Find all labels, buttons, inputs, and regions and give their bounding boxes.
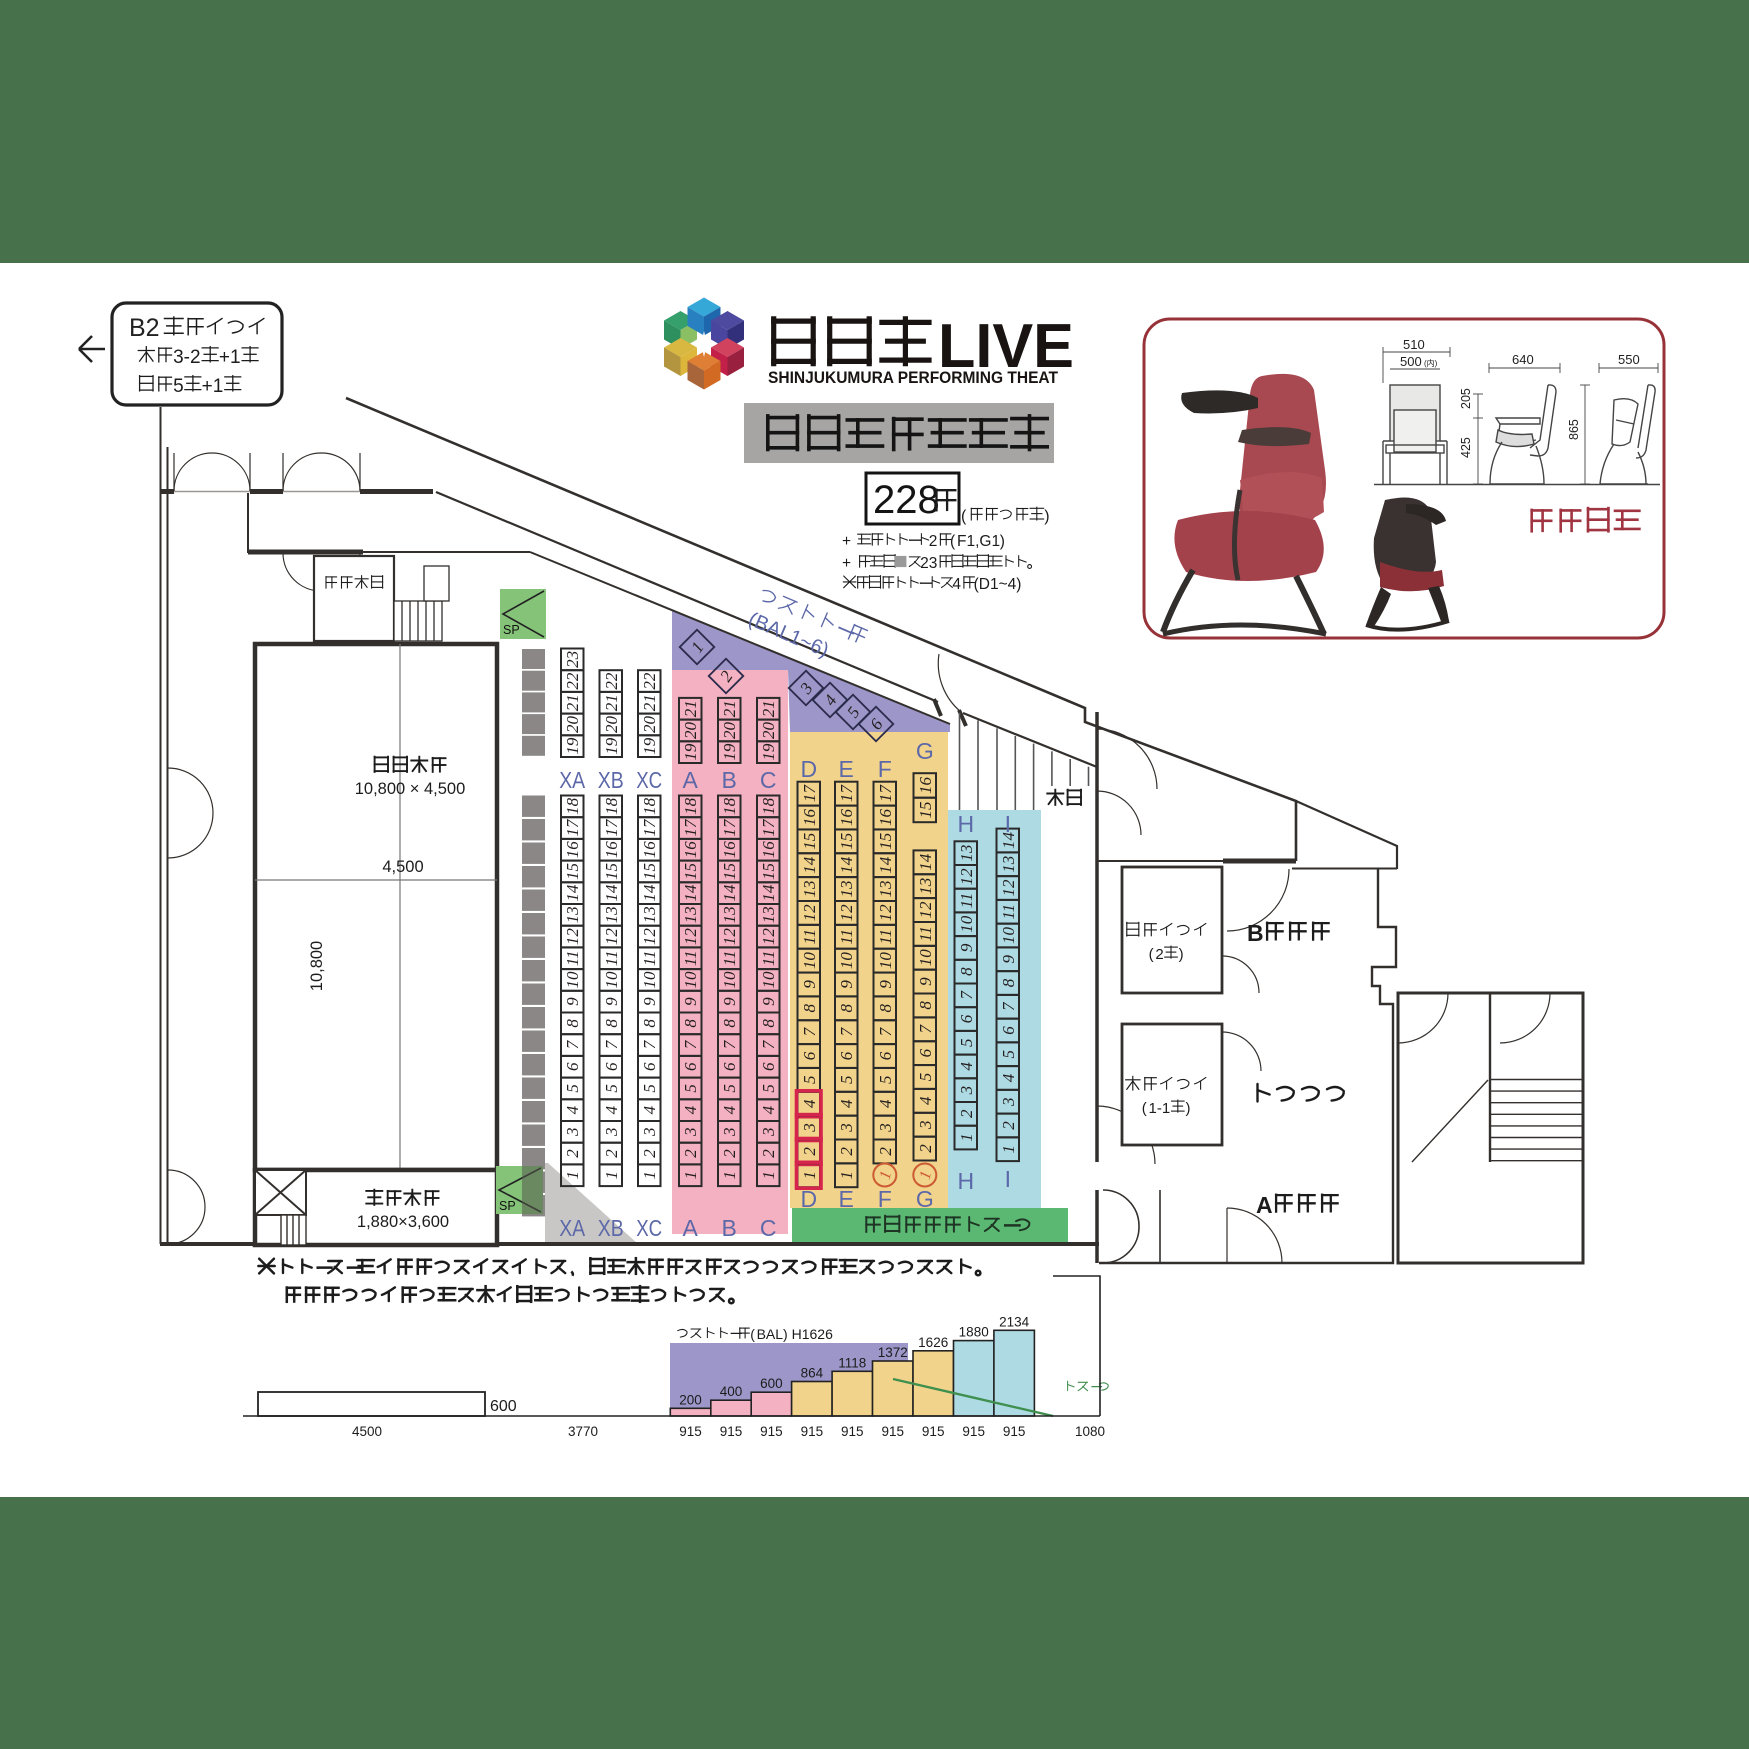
svg-text:ー: ー [907, 533, 923, 550]
svg-text:12: 12 [916, 901, 935, 919]
svg-text:12: 12 [957, 868, 976, 886]
svg-text:1626: 1626 [918, 1335, 948, 1350]
svg-text:3: 3 [957, 1086, 976, 1096]
svg-text:): ) [1044, 508, 1049, 525]
svg-text:20: 20 [759, 722, 778, 740]
svg-text:5: 5 [759, 1084, 778, 1093]
svg-text:425: 425 [1459, 437, 1473, 458]
svg-text:5: 5 [173, 376, 184, 397]
svg-text:11: 11 [916, 926, 935, 942]
svg-text:19: 19 [602, 737, 621, 755]
svg-text:865: 865 [1567, 419, 1581, 440]
svg-text:17: 17 [800, 784, 819, 803]
svg-text:21: 21 [681, 700, 700, 717]
svg-text:(: ( [1142, 1100, 1147, 1117]
svg-text:6: 6 [957, 1014, 976, 1023]
svg-text:11: 11 [681, 950, 700, 966]
svg-text:14: 14 [563, 884, 582, 902]
svg-text:+: + [842, 555, 851, 572]
svg-text:6: 6 [563, 1062, 582, 1071]
svg-text:3-2: 3-2 [173, 347, 200, 368]
svg-text:16: 16 [837, 809, 856, 827]
svg-text:17: 17 [759, 818, 778, 837]
svg-text:400: 400 [720, 1384, 743, 1399]
svg-text:(: ( [750, 1326, 755, 1342]
svg-text:9: 9 [563, 997, 582, 1006]
svg-text:22: 22 [602, 672, 621, 690]
svg-text:8: 8 [759, 1019, 778, 1028]
svg-text:13: 13 [916, 878, 935, 895]
svg-text:5: 5 [800, 1076, 819, 1085]
svg-text:9: 9 [876, 980, 895, 989]
svg-text:2: 2 [837, 1147, 856, 1156]
svg-text:5: 5 [916, 1073, 935, 1082]
svg-text:18: 18 [681, 797, 700, 815]
svg-text:11: 11 [800, 929, 819, 945]
svg-text:11: 11 [640, 950, 659, 966]
svg-text:3: 3 [916, 1120, 935, 1130]
svg-text:1: 1 [720, 1171, 739, 1180]
svg-text:2: 2 [800, 1147, 819, 1156]
svg-text:8: 8 [720, 1019, 739, 1028]
svg-text:(内): (内) [1424, 358, 1438, 368]
svg-text:1: 1 [602, 1171, 621, 1180]
svg-text:3: 3 [602, 1128, 621, 1138]
svg-text:12: 12 [681, 928, 700, 946]
svg-text:11: 11 [837, 929, 856, 945]
svg-text:1: 1 [563, 1171, 582, 1180]
svg-text:1: 1 [800, 1171, 819, 1180]
svg-text:BAL) H1626: BAL) H1626 [757, 1326, 833, 1342]
svg-text:3: 3 [800, 1123, 819, 1133]
svg-text:14: 14 [720, 884, 739, 902]
svg-text:5: 5 [681, 1084, 700, 1093]
svg-text:16: 16 [800, 809, 819, 827]
svg-text:5: 5 [602, 1084, 621, 1093]
svg-text:6: 6 [837, 1051, 856, 1060]
svg-text:11: 11 [602, 950, 621, 966]
svg-text:550: 550 [1618, 352, 1640, 367]
svg-text:15: 15 [602, 863, 621, 880]
svg-text:13: 13 [999, 856, 1018, 873]
svg-text:(: ( [1149, 946, 1154, 963]
svg-text:1118: 1118 [838, 1355, 866, 1370]
svg-text:19: 19 [563, 737, 582, 755]
svg-text:9: 9 [602, 997, 621, 1006]
svg-text:12: 12 [563, 928, 582, 946]
svg-text:4: 4 [640, 1105, 659, 1114]
svg-text:(: ( [950, 533, 956, 550]
svg-text:XC: XC [636, 767, 662, 793]
svg-text:): ) [1000, 533, 1005, 550]
svg-text:3: 3 [876, 1123, 895, 1133]
svg-text:17: 17 [837, 784, 856, 803]
svg-text:F: F [878, 756, 892, 782]
svg-text:12: 12 [720, 928, 739, 946]
svg-text:16: 16 [916, 777, 935, 795]
svg-text:XA: XA [559, 767, 586, 793]
svg-text:16: 16 [640, 841, 659, 859]
svg-text:915: 915 [760, 1424, 783, 1439]
svg-text:9: 9 [957, 943, 976, 952]
svg-text:2: 2 [759, 1149, 778, 1158]
svg-text:12: 12 [602, 928, 621, 946]
svg-text:10: 10 [837, 952, 856, 970]
svg-text:6: 6 [999, 1026, 1018, 1035]
svg-text:C: C [760, 767, 777, 793]
svg-text:10: 10 [602, 971, 621, 989]
svg-text:14: 14 [681, 884, 700, 902]
svg-text:8: 8 [640, 1019, 659, 1028]
svg-text:F1,G1: F1,G1 [957, 533, 1000, 550]
svg-text:ー: ー [1090, 1380, 1104, 1395]
svg-text:2: 2 [999, 1121, 1018, 1130]
svg-text:205: 205 [1459, 388, 1473, 409]
svg-text:8: 8 [563, 1019, 582, 1028]
svg-text:20: 20 [640, 716, 659, 734]
svg-text:16: 16 [602, 841, 621, 859]
svg-text:G: G [916, 738, 934, 764]
svg-text:17: 17 [563, 818, 582, 837]
svg-text:21: 21 [759, 700, 778, 717]
svg-text:23: 23 [920, 555, 937, 572]
svg-text:3: 3 [640, 1128, 659, 1138]
svg-text:17: 17 [602, 818, 621, 837]
svg-text:3: 3 [759, 1128, 778, 1138]
svg-text:XA: XA [559, 1215, 586, 1241]
svg-text:4: 4 [602, 1105, 621, 1114]
svg-text:B: B [1247, 920, 1264, 946]
svg-text:12: 12 [800, 904, 819, 922]
svg-text:500: 500 [1400, 354, 1422, 369]
svg-text:I: I [1005, 1166, 1011, 1192]
svg-text:16: 16 [563, 841, 582, 859]
svg-text:14: 14 [876, 856, 895, 874]
svg-text:16: 16 [681, 841, 700, 859]
svg-text:4500: 4500 [352, 1424, 382, 1439]
svg-text:9: 9 [759, 997, 778, 1006]
svg-text:D: D [800, 1186, 817, 1212]
svg-text:+1: +1 [202, 376, 224, 397]
svg-text:2134: 2134 [999, 1314, 1030, 1329]
svg-text:8: 8 [681, 1019, 700, 1028]
svg-text:9: 9 [800, 980, 819, 989]
svg-text:C: C [760, 1215, 777, 1241]
svg-text:19: 19 [681, 743, 700, 761]
svg-text:1080: 1080 [1075, 1424, 1105, 1439]
svg-text:5: 5 [640, 1084, 659, 1093]
svg-text:13: 13 [837, 881, 856, 898]
svg-text:915: 915 [841, 1424, 864, 1439]
svg-text:14: 14 [759, 884, 778, 902]
svg-text:21: 21 [720, 700, 739, 717]
svg-text:1-1: 1-1 [1149, 1100, 1171, 1117]
svg-text:9: 9 [720, 997, 739, 1006]
svg-text:915: 915 [720, 1424, 743, 1439]
svg-text:864: 864 [801, 1366, 824, 1381]
svg-text:3: 3 [681, 1128, 700, 1138]
svg-text:2: 2 [602, 1149, 621, 1158]
svg-text:+1: +1 [219, 347, 241, 368]
svg-text:9: 9 [640, 997, 659, 1006]
svg-text:15: 15 [640, 863, 659, 880]
svg-text:10: 10 [876, 952, 895, 970]
svg-text:2: 2 [681, 1149, 700, 1158]
svg-text:915: 915 [962, 1424, 985, 1439]
svg-text:10: 10 [720, 971, 739, 989]
svg-text:11: 11 [999, 904, 1018, 920]
svg-text:11: 11 [957, 893, 976, 909]
svg-text:2: 2 [929, 533, 938, 550]
svg-text:10,800 × 4,500: 10,800 × 4,500 [355, 780, 466, 798]
svg-text:13: 13 [759, 906, 778, 923]
svg-text:12: 12 [640, 928, 659, 946]
svg-text:6: 6 [876, 1051, 895, 1060]
svg-text:19: 19 [720, 743, 739, 761]
svg-text:F: F [878, 1186, 892, 1212]
svg-text:1: 1 [999, 1145, 1018, 1154]
svg-text:12: 12 [759, 928, 778, 946]
svg-text:1: 1 [681, 1171, 700, 1180]
svg-text:9: 9 [837, 980, 856, 989]
svg-text:19: 19 [759, 743, 778, 761]
svg-text:10: 10 [916, 949, 935, 967]
svg-text:14: 14 [837, 856, 856, 874]
svg-text:SP: SP [499, 1199, 516, 1213]
svg-text:4: 4 [999, 1073, 1018, 1082]
svg-text:3: 3 [720, 1128, 739, 1138]
svg-text:4: 4 [957, 1062, 976, 1071]
svg-text:6: 6 [916, 1048, 935, 1057]
svg-text:17: 17 [876, 784, 895, 803]
svg-text:6: 6 [720, 1062, 739, 1071]
svg-text:18: 18 [602, 797, 621, 815]
svg-text:5: 5 [720, 1084, 739, 1093]
svg-text:8: 8 [837, 1004, 856, 1013]
svg-text:510: 510 [1403, 337, 1425, 352]
svg-text:8: 8 [602, 1019, 621, 1028]
svg-text:20: 20 [720, 722, 739, 740]
svg-text:B: B [722, 1215, 737, 1241]
svg-text:5: 5 [999, 1050, 1018, 1059]
svg-text:A: A [683, 1215, 699, 1241]
svg-text:22: 22 [640, 672, 659, 690]
svg-text:SP: SP [503, 623, 520, 637]
svg-text:11: 11 [720, 950, 739, 966]
svg-text:G: G [916, 1186, 934, 1212]
svg-text:B: B [722, 767, 737, 793]
svg-text:4: 4 [952, 576, 961, 593]
svg-text:915: 915 [922, 1424, 945, 1439]
svg-text:2: 2 [876, 1147, 895, 1156]
svg-text:18: 18 [640, 797, 659, 815]
svg-text:16: 16 [720, 841, 739, 859]
svg-text:17: 17 [720, 818, 739, 837]
svg-text:20: 20 [563, 716, 582, 734]
svg-text:B2: B2 [129, 314, 160, 342]
svg-text:1: 1 [957, 1133, 976, 1142]
svg-text:13: 13 [681, 906, 700, 923]
svg-text:SHINJUKUMURA PERFORMING THEAT: SHINJUKUMURA PERFORMING THEAT [768, 368, 1059, 387]
svg-text:4: 4 [720, 1105, 739, 1114]
svg-text:10: 10 [800, 952, 819, 970]
svg-text:5: 5 [876, 1076, 895, 1085]
svg-text:): ) [1179, 946, 1184, 963]
svg-text:15: 15 [800, 833, 819, 850]
svg-text:(D1~4): (D1~4) [974, 576, 1022, 593]
svg-text:XB: XB [598, 767, 624, 793]
svg-text:10: 10 [681, 971, 700, 989]
svg-text:13: 13 [602, 906, 621, 923]
svg-text:200: 200 [679, 1392, 702, 1407]
svg-text:15: 15 [916, 802, 935, 819]
svg-text:4: 4 [681, 1105, 700, 1114]
svg-text:16: 16 [759, 841, 778, 859]
svg-text:2: 2 [563, 1149, 582, 1158]
svg-text:1,880×3,600: 1,880×3,600 [357, 1213, 449, 1231]
svg-text:10: 10 [957, 915, 976, 933]
svg-text:4: 4 [837, 1099, 856, 1108]
svg-text:9: 9 [681, 997, 700, 1006]
svg-text:5: 5 [563, 1084, 582, 1093]
svg-text:20: 20 [602, 716, 621, 734]
svg-text:4: 4 [876, 1099, 895, 1108]
svg-text:14: 14 [800, 856, 819, 874]
svg-text:4: 4 [563, 1105, 582, 1114]
svg-text:11: 11 [563, 950, 582, 966]
svg-text:12: 12 [876, 904, 895, 922]
svg-text:1: 1 [759, 1171, 778, 1180]
svg-text:I: I [1005, 811, 1011, 837]
svg-text:600: 600 [490, 1398, 517, 1415]
svg-text:10: 10 [999, 927, 1018, 945]
svg-text:23: 23 [563, 651, 582, 668]
svg-text:ー: ー [918, 576, 934, 593]
svg-text:13: 13 [957, 845, 976, 862]
svg-text:8: 8 [800, 1004, 819, 1013]
svg-text:XC: XC [636, 1215, 662, 1241]
svg-text:915: 915 [679, 1424, 702, 1439]
svg-text:18: 18 [720, 797, 739, 815]
svg-text:8: 8 [876, 1004, 895, 1013]
svg-text:11: 11 [876, 929, 895, 945]
svg-text:2: 2 [916, 1144, 935, 1153]
svg-text:19: 19 [640, 737, 659, 755]
svg-text:915: 915 [882, 1424, 905, 1439]
svg-text:21: 21 [602, 694, 621, 711]
svg-text:2: 2 [720, 1149, 739, 1158]
svg-text:13: 13 [640, 906, 659, 923]
svg-text:15: 15 [720, 863, 739, 880]
svg-text:6: 6 [681, 1062, 700, 1071]
svg-text:E: E [839, 756, 854, 782]
svg-text:+: + [842, 533, 851, 550]
svg-text:8: 8 [957, 967, 976, 976]
svg-text:A: A [683, 767, 699, 793]
svg-text:H: H [957, 811, 974, 837]
svg-text:15: 15 [563, 863, 582, 880]
svg-text:4,500: 4,500 [382, 858, 423, 876]
svg-text:4: 4 [759, 1105, 778, 1114]
svg-text:10: 10 [563, 971, 582, 989]
svg-text:15: 15 [837, 833, 856, 850]
svg-text:600: 600 [760, 1376, 783, 1391]
svg-text:12: 12 [999, 879, 1018, 897]
svg-text:6: 6 [602, 1062, 621, 1071]
svg-text:3: 3 [563, 1128, 582, 1138]
svg-text:13: 13 [800, 881, 819, 898]
svg-text:13: 13 [563, 906, 582, 923]
svg-text:8: 8 [916, 1001, 935, 1010]
svg-text:8: 8 [999, 978, 1018, 987]
svg-text:10,800: 10,800 [308, 941, 326, 991]
svg-text:18: 18 [563, 797, 582, 815]
svg-text:): ) [1186, 1100, 1191, 1117]
svg-text:3770: 3770 [568, 1424, 598, 1439]
svg-text:14: 14 [602, 884, 621, 902]
svg-text:915: 915 [1003, 1424, 1026, 1439]
svg-text:6: 6 [800, 1051, 819, 1060]
svg-text:4: 4 [916, 1096, 935, 1105]
svg-text:1: 1 [837, 1171, 856, 1180]
svg-text:22: 22 [563, 672, 582, 690]
svg-text:5: 5 [837, 1076, 856, 1085]
svg-text:14: 14 [916, 853, 935, 871]
svg-text:11: 11 [759, 950, 778, 966]
svg-text:A: A [1256, 1192, 1273, 1218]
svg-text:18: 18 [759, 797, 778, 815]
svg-text:13: 13 [720, 906, 739, 923]
svg-text:640: 640 [1512, 352, 1534, 367]
svg-text:15: 15 [681, 863, 700, 880]
svg-text:2: 2 [640, 1149, 659, 1158]
svg-text:17: 17 [681, 818, 700, 837]
svg-text:D: D [800, 756, 817, 782]
svg-text:10: 10 [640, 971, 659, 989]
svg-text:XB: XB [598, 1215, 624, 1241]
svg-text:14: 14 [640, 884, 659, 902]
svg-text:4: 4 [800, 1099, 819, 1108]
svg-text:13: 13 [876, 881, 895, 898]
svg-text:9: 9 [999, 954, 1018, 963]
svg-text:16: 16 [876, 809, 895, 827]
svg-text:3: 3 [837, 1123, 856, 1133]
svg-text:228: 228 [873, 478, 940, 522]
svg-text:915: 915 [801, 1424, 824, 1439]
svg-text:17: 17 [640, 818, 659, 837]
svg-text:5: 5 [957, 1038, 976, 1047]
svg-text:21: 21 [640, 694, 659, 711]
svg-text:(: ( [961, 508, 967, 525]
svg-text:1372: 1372 [878, 1345, 908, 1360]
svg-text:6: 6 [640, 1062, 659, 1071]
svg-text:2: 2 [1155, 946, 1163, 963]
svg-text:1880: 1880 [959, 1325, 989, 1340]
svg-text:10: 10 [759, 971, 778, 989]
svg-text:15: 15 [876, 833, 895, 850]
svg-text:3: 3 [999, 1097, 1018, 1107]
svg-text:1: 1 [640, 1171, 659, 1180]
svg-text:9: 9 [916, 977, 935, 986]
svg-text:2: 2 [957, 1109, 976, 1118]
svg-text:15: 15 [759, 863, 778, 880]
svg-text:12: 12 [837, 904, 856, 922]
svg-text:20: 20 [681, 722, 700, 740]
svg-text:6: 6 [759, 1062, 778, 1071]
svg-text:21: 21 [563, 694, 582, 711]
svg-text:H: H [957, 1168, 974, 1194]
svg-text:E: E [839, 1186, 854, 1212]
